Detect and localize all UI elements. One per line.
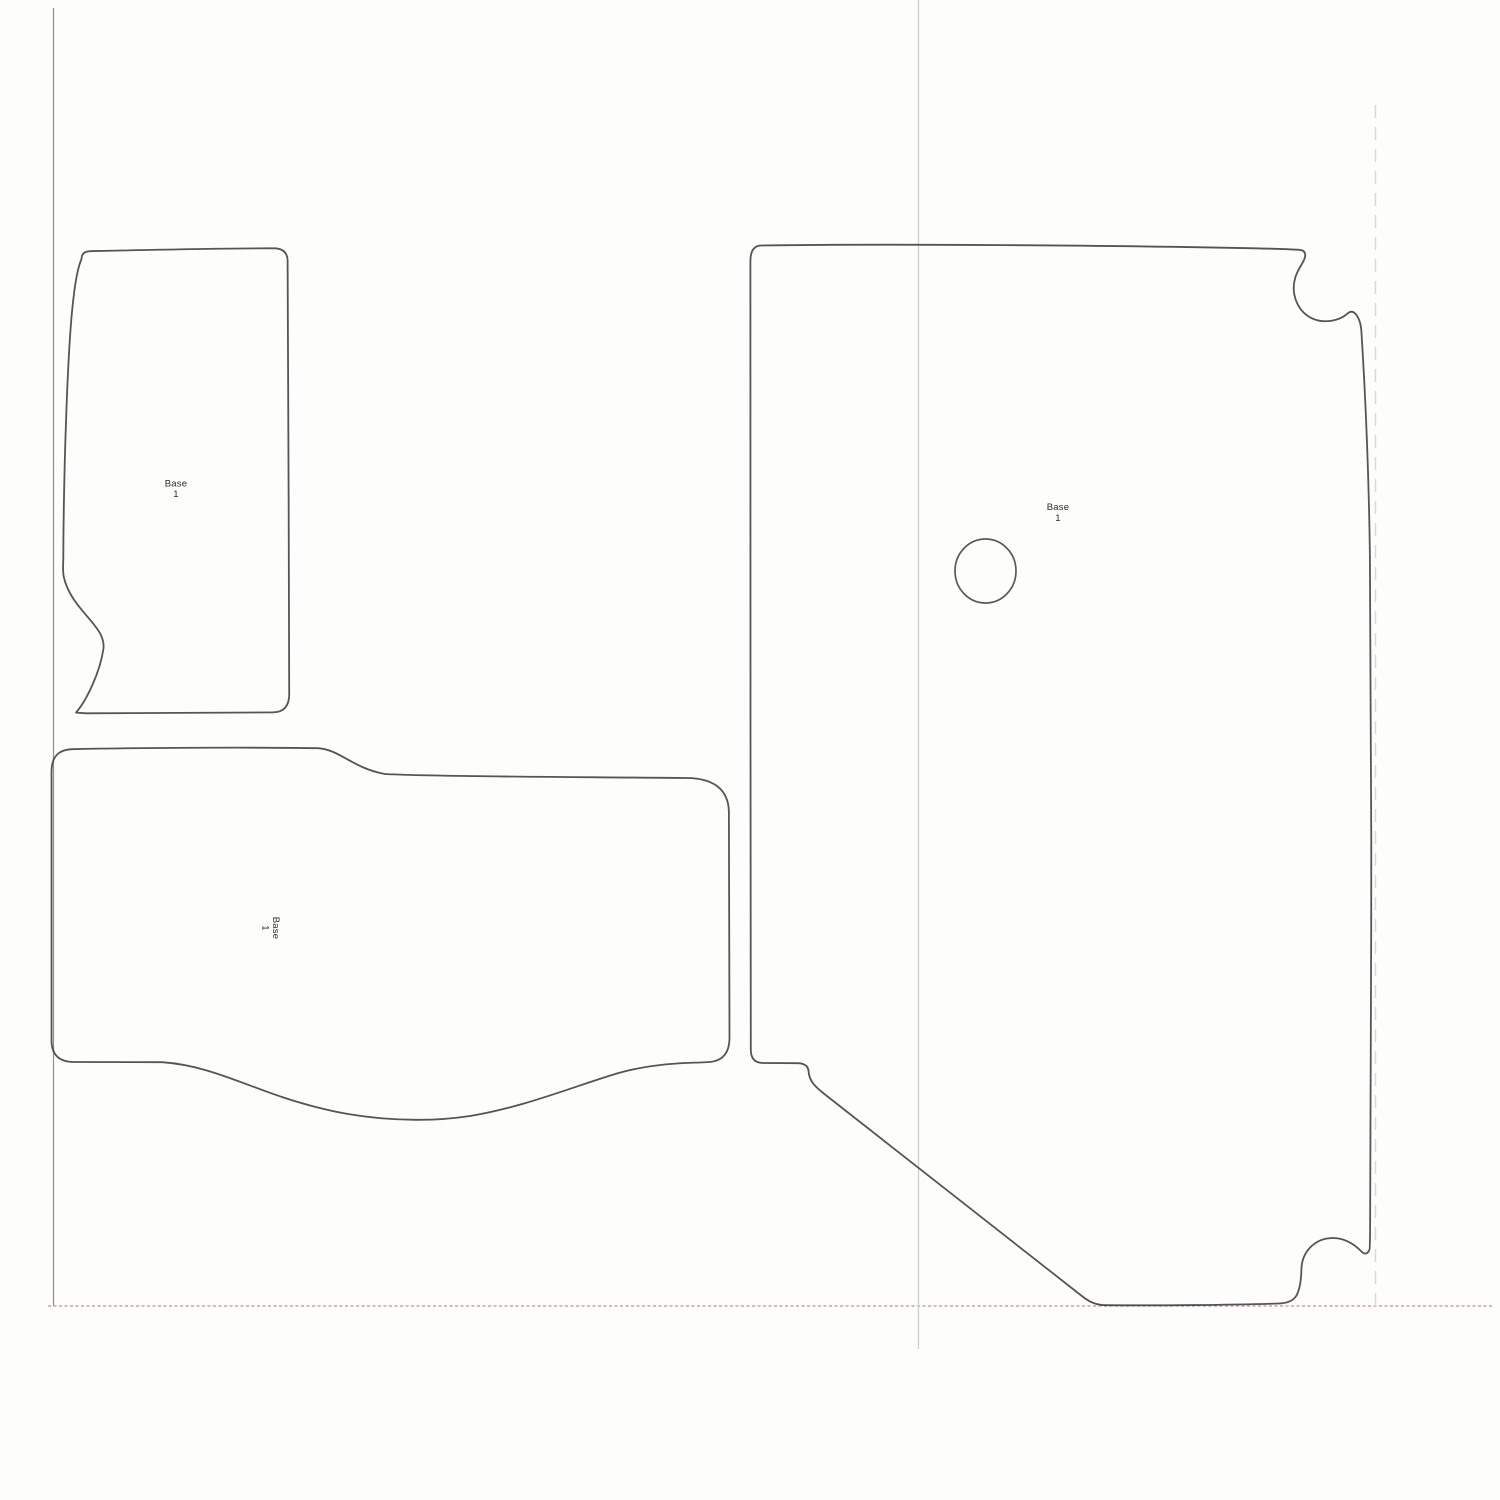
piece-right-label-qty: 1 — [1055, 513, 1060, 524]
piece-upper-left-label-name: Base — [165, 479, 187, 490]
piece-lower-left-label-name: Base — [270, 917, 281, 939]
piece-lower-left-label-qty: 1 — [260, 925, 271, 930]
pattern-canvas: Base 1 Base 1 Base 1 — [0, 0, 1500, 1500]
piece-upper-left-label-qty: 1 — [173, 489, 178, 500]
piece-right-label-name: Base — [1047, 502, 1069, 513]
pattern-sheet: Base 1 Base 1 Base 1 — [0, 0, 1500, 1500]
